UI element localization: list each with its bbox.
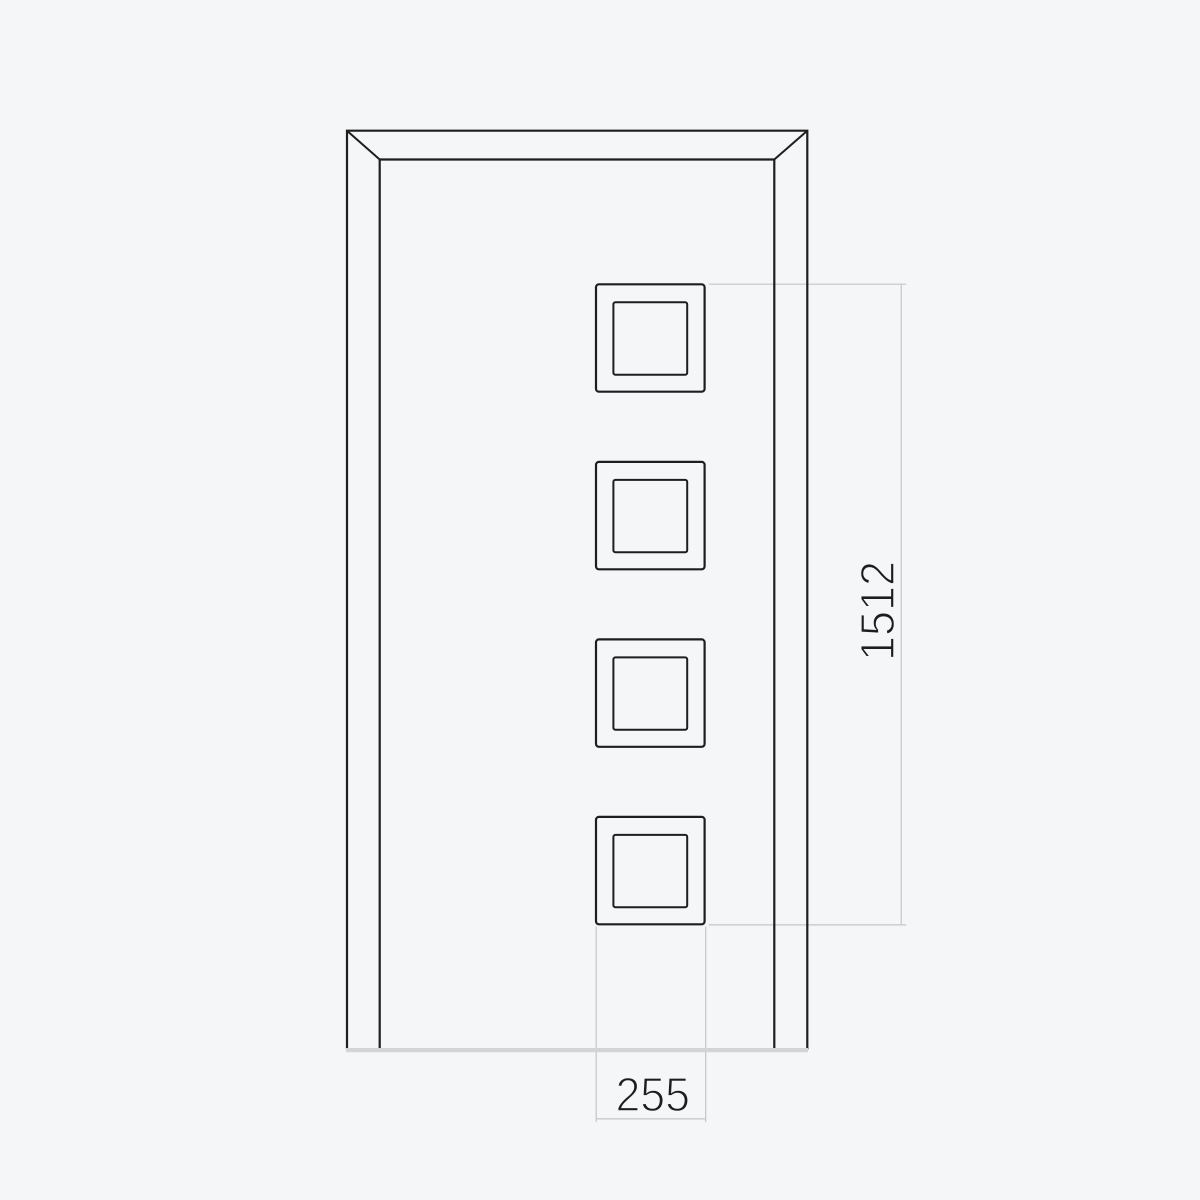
- svg-text:255: 255: [615, 1069, 690, 1122]
- svg-text:1512: 1512: [852, 561, 905, 661]
